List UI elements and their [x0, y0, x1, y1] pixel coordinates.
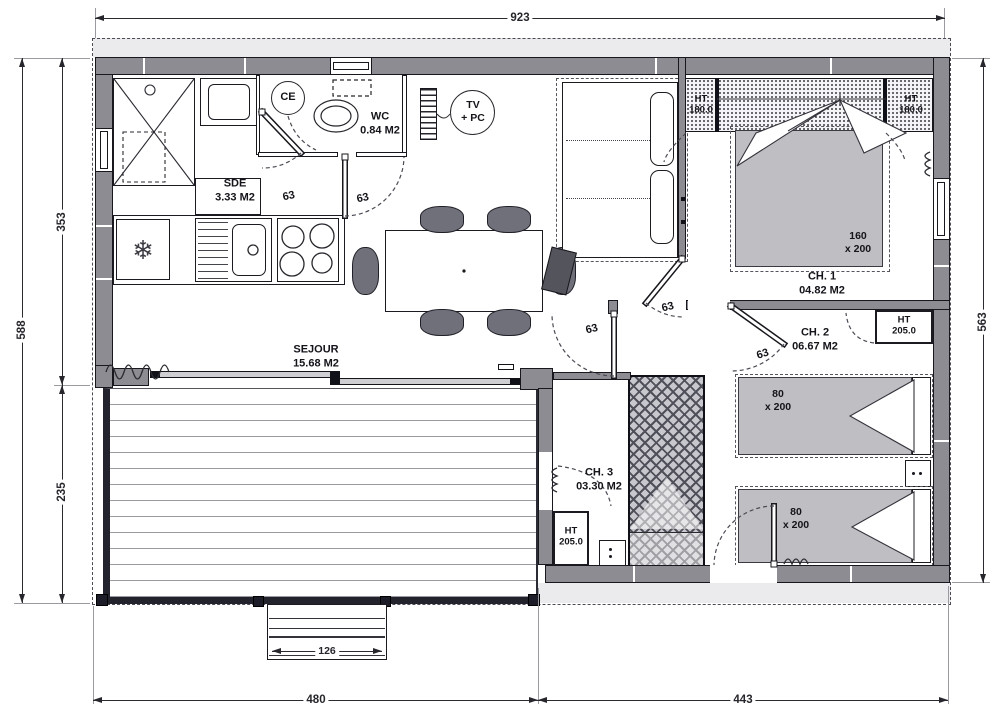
cabinet-knob: [609, 548, 612, 551]
dim-arrow: [59, 594, 65, 603]
bed-width: 80: [783, 506, 809, 519]
wall-top: [95, 57, 950, 75]
dim-arrow: [373, 648, 382, 654]
window-left-frame: [100, 131, 108, 169]
wall-joint: [96, 225, 112, 227]
room-name: CH. 1: [799, 270, 845, 284]
wall-stud: [681, 220, 685, 224]
bay-end-cap: [510, 378, 520, 385]
terrace-post: [96, 594, 108, 606]
wall-joint: [143, 58, 145, 74]
dim-arrow: [980, 58, 986, 67]
door-width-label: 63: [282, 189, 297, 205]
dim-arrow: [93, 697, 102, 703]
bed-width: 80: [765, 388, 791, 401]
dim-arrow: [980, 574, 986, 583]
wall-joint: [244, 58, 246, 74]
door-opening-ch2: [688, 300, 730, 310]
extension-line: [93, 606, 94, 704]
dim-arrow: [59, 385, 65, 394]
bed-length: x 200: [783, 519, 809, 532]
chair: [420, 206, 464, 233]
sofa-back-cushion: [650, 170, 674, 244]
shower-tray: [113, 78, 195, 186]
ht-height: 180.0: [689, 105, 713, 116]
step-line: [269, 618, 385, 619]
room-name: CH. 3: [576, 466, 622, 480]
door-opening-ch3: [539, 452, 552, 510]
door-width-label: 63: [356, 191, 371, 207]
overbed-shelf-ch1: [717, 78, 886, 132]
wall-sde-wc: [256, 75, 260, 155]
ht-height: 205.0: [559, 537, 583, 548]
cooktop: [277, 218, 339, 282]
wall-sejour-ch1: [678, 57, 686, 258]
terrace-post: [253, 596, 264, 607]
room-area: 3.33 M2: [215, 191, 255, 205]
dim-overall-width: 923: [507, 12, 532, 24]
wall-wc-right: [402, 75, 407, 157]
nightstand: [905, 460, 931, 487]
bay-end-cap: [150, 371, 160, 378]
ht-text: HT: [899, 94, 923, 105]
bed-ch2b-headboard: [912, 489, 931, 563]
bed-width: 160: [845, 230, 871, 243]
step-line: [269, 628, 385, 629]
wall-corner: [95, 365, 113, 388]
bed-length: x 200: [765, 401, 791, 414]
extension-line: [538, 588, 539, 704]
floor-plan: CE ❄ TV + PC HT 180.0 HT 180.0 160 x 2: [0, 0, 1003, 711]
wall-joint: [850, 566, 852, 582]
wall-right: [933, 57, 950, 583]
tv-label-line1: TV: [461, 99, 485, 112]
room-area: 0.84 M2: [360, 124, 400, 138]
nightstand-knob: [919, 472, 922, 475]
bay-end-cap: [330, 371, 340, 378]
dim-arrow: [529, 697, 538, 703]
room-area: 03.30 M2: [576, 480, 622, 494]
window-right-ch1-frame: [937, 182, 945, 236]
wardrobe-ch1-right-label: HT 180.0: [899, 94, 923, 117]
water-heater-label: CE: [280, 91, 295, 105]
room-name: SEJOUR: [293, 343, 339, 357]
bunk-lower-strip: [630, 532, 703, 565]
ht-text: HT: [559, 526, 583, 537]
chair: [420, 309, 464, 336]
bed-ch2b: [738, 489, 912, 563]
room-label-ch3: CH. 3 03.30 M2: [576, 466, 622, 494]
sliding-bay-panel[interactable]: [150, 371, 340, 378]
extension-line: [948, 586, 949, 704]
room-label-ch1: CH. 1 04.82 M2: [799, 270, 845, 298]
dining-table: [385, 230, 543, 312]
wall-left: [95, 74, 113, 388]
wardrobe-ch2-label: HT 205.0: [892, 315, 916, 338]
dim-arrow: [59, 376, 65, 385]
room-area: 04.82 M2: [799, 284, 845, 298]
wall-joint: [655, 58, 657, 74]
fridge-snowflake-icon: ❄: [132, 234, 154, 267]
wall-segment: [113, 368, 149, 386]
room-label-sde: SDE 3.33 M2: [215, 177, 255, 205]
wardrobe-ch3-label: HT 205.0: [559, 526, 583, 549]
bed-ch2b-size: 80 x 200: [783, 506, 809, 532]
sliding-bay-panel[interactable]: [330, 378, 520, 385]
bed-ch2a-headboard: [912, 377, 931, 455]
room-name: SDE: [215, 177, 255, 191]
dim-terrace-width: 480: [303, 694, 328, 706]
cabinet-ch3: [599, 540, 626, 566]
wall-wc-south: [258, 152, 338, 157]
wall-joint: [934, 440, 949, 442]
wall-joint: [96, 278, 112, 280]
chair: [352, 247, 379, 295]
room-area: 06.67 M2: [792, 340, 838, 354]
bed-ch2a-size: 80 x 200: [765, 388, 791, 414]
dim-arrow: [19, 594, 25, 603]
terrace-deck: [103, 388, 538, 604]
wall-corner: [520, 368, 553, 390]
extension-line: [95, 8, 96, 38]
room-area: 15.68 M2: [293, 357, 339, 371]
dim-arrow: [538, 697, 547, 703]
wardrobe-ch1-left-label: HT 180.0: [689, 94, 713, 117]
bed-ch1-size: 160 x 200: [845, 230, 871, 256]
ht-text: HT: [892, 315, 916, 326]
sink-drainer: [198, 221, 228, 279]
washbasin-bowl: [208, 84, 250, 120]
dim-arrow: [272, 648, 281, 654]
wall-joint: [934, 265, 949, 267]
wall-wc-south: [356, 152, 407, 157]
tv-label-line2: + PC: [461, 112, 485, 125]
dim-right-height: 563: [977, 309, 989, 334]
chair: [487, 206, 531, 233]
sofa-seat-line: [566, 198, 650, 199]
sofa-seat-line: [566, 140, 650, 141]
tv-pc-label: TV + PC: [461, 99, 485, 125]
room-label-wc: WC 0.84 M2: [360, 110, 400, 138]
dim-left-lower: 235: [56, 479, 68, 504]
dim-arrow: [939, 697, 948, 703]
cabinet-knob: [609, 555, 612, 558]
dim-bedroom-width: 443: [730, 694, 755, 706]
wall-joint: [830, 58, 832, 74]
wardrobe-divider: [715, 78, 719, 132]
ht-height: 205.0: [892, 326, 916, 337]
dim-left-total: 588: [16, 317, 28, 342]
sofa-back-cushion: [650, 92, 674, 166]
window-top-frame: [333, 62, 369, 70]
step-line: [269, 636, 385, 638]
dim-left-upper: 353: [56, 209, 68, 234]
room-name: WC: [360, 110, 400, 124]
bay-handle[interactable]: [498, 364, 514, 370]
sink-basin: [232, 224, 266, 276]
dim-arrow: [19, 58, 25, 67]
dim-arrow: [936, 15, 945, 21]
wall-stub-hall: [608, 300, 618, 314]
room-label-ch2: CH. 2 06.67 M2: [792, 326, 838, 354]
extension-line: [14, 58, 90, 59]
room-name: CH. 2: [792, 326, 838, 340]
wall-sejour-ch3: [553, 372, 631, 380]
ht-height: 180.0: [899, 105, 923, 116]
tv-unit: [420, 88, 437, 140]
extension-line: [14, 603, 90, 604]
wall-stud: [681, 197, 685, 201]
ht-text: HT: [689, 94, 713, 105]
nightstand-knob: [912, 472, 915, 475]
bay-end-cap: [330, 378, 340, 385]
dim-arrow: [95, 15, 104, 21]
extension-line: [944, 8, 945, 38]
wardrobe-divider: [883, 78, 887, 132]
back-door-opening: [710, 565, 777, 583]
wall-joint: [633, 566, 635, 582]
dim-arrow: [59, 58, 65, 67]
bed-length: x 200: [845, 243, 871, 256]
chair: [487, 309, 531, 336]
room-label-sejour: SEJOUR 15.68 M2: [293, 343, 339, 371]
dim-steps-width: 126: [315, 645, 339, 657]
